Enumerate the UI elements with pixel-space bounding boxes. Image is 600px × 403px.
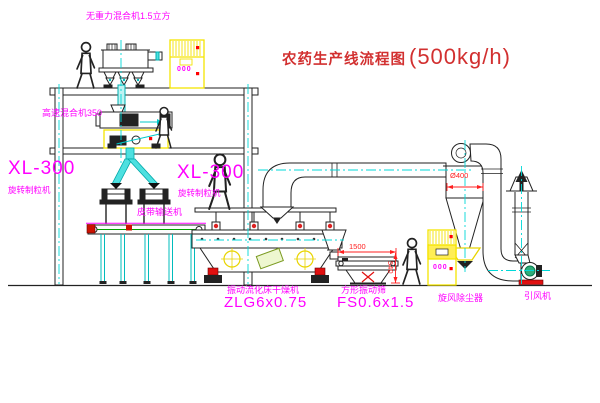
control-cabinet-top [170,40,204,88]
cabinet-top-display: 000 [177,66,192,73]
dim-sieve-length: 1500 [349,243,366,251]
label-sieve-model: FS0.6x1.5 [337,295,414,310]
label-gravity-mixer: 无重力混合机1.5立方 [86,12,171,21]
indicator-light [196,72,199,75]
granulator-right [138,183,170,224]
dim-sieve-height: 540 [387,261,395,274]
fan-motor [536,265,542,277]
label-belt-conveyor: 皮带输送机 [137,208,182,217]
induced-draft-fan [519,263,543,285]
exhaust-duct [261,163,446,224]
diagram-title: 农药生产线流程图 (500kg/h) [282,44,511,70]
indicator-light [450,267,453,270]
indicator-light [450,235,453,238]
label-granulator-left-name: 旋转制粒机 [8,186,51,195]
dim-cyclone-diameter: Ø400 [450,172,468,180]
gravity-mixer [99,44,162,88]
label-granulator-right-name: 旋转制粒机 [178,189,221,198]
title-text: 农药生产线流程图 [282,48,406,69]
label-granulator-left-model: XL-300 [8,159,75,178]
label-dryer-model: ZLG6x0.75 [224,295,307,310]
label-fan: 引风机 [524,292,551,301]
worker-top-floor [77,43,94,88]
granulator-left [100,183,132,224]
label-granulator-right-model: XL-300 [177,163,244,182]
indicator-light [196,46,199,49]
label-cyclone: 旋风除尘器 [438,294,483,303]
belt-conveyor [86,223,206,284]
title-capacity: (500kg/h) [409,44,511,70]
control-cabinet-ground [428,230,456,285]
worker-ground [403,239,420,284]
label-high-speed-mixer: 高速混合机350 [42,109,102,118]
flow-diagram: 农药生产线流程图 (500kg/h) 无重力混合机1.5立方 高速混合机350 … [0,0,600,403]
fan-base [519,280,543,285]
cabinet-ground-display: 000 [433,264,448,271]
fluid-bed-dryer [192,208,346,283]
